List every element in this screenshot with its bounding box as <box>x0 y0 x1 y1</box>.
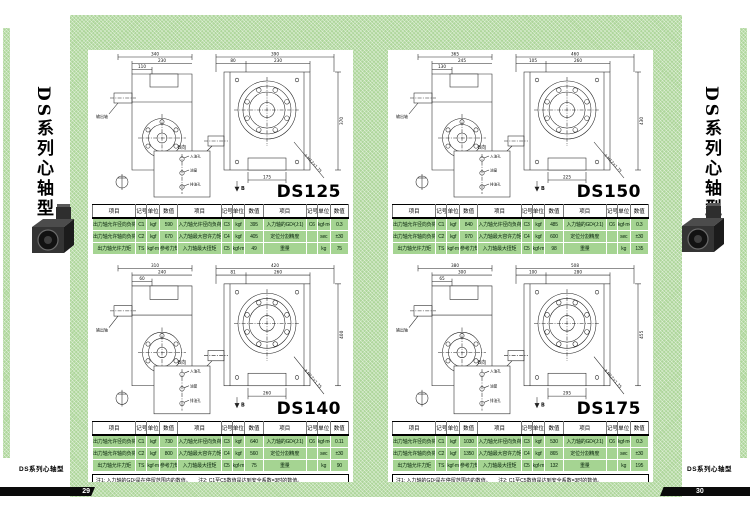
spec-cell: kgf·m <box>232 243 245 255</box>
spec-row: 出力轴允许径向负荷C1kgf1030入力轴允许径向负荷C3kgf530入力轴的G… <box>393 435 649 448</box>
col-header: 单位 <box>617 205 630 219</box>
col-header: 项目 <box>393 205 436 219</box>
col-header: 记号 <box>306 422 317 436</box>
col-header: 单位 <box>532 422 545 436</box>
spec-row: 出力轴允许轴向负荷C2kgf670入力轴最大容许力矩C4kgf405定位分割精度… <box>93 231 349 243</box>
spec-cell: kg <box>617 243 630 255</box>
spec-cell: 90 <box>330 460 348 472</box>
model-title: DS150 <box>577 182 641 202</box>
spec-cell: C6 <box>606 218 617 231</box>
table-header-row: 项目记号单位数值项目记号单位数值项目记号单位数值 <box>93 205 349 219</box>
spec-cell <box>306 448 317 460</box>
drawing-quadrant: 365 245 130 输出轴 460 105 260 输入轴 430 225 … <box>388 50 653 202</box>
col-header: 数值 <box>630 422 648 436</box>
col-header: 数值 <box>330 422 348 436</box>
view-mark-label: B <box>541 186 545 192</box>
dim-label: 340 <box>151 52 159 57</box>
spec-cell: TS <box>436 243 447 255</box>
spec-table: 项目记号单位数值项目记号单位数值项目记号单位数值出力轴允许径向负荷C1kgf73… <box>92 421 349 472</box>
col-header: 数值 <box>245 205 263 219</box>
dim-label: 380 <box>451 263 459 269</box>
spec-cell: kgf·m <box>532 460 545 472</box>
spec-cell: 出力轴允许轴向负荷 <box>393 231 436 243</box>
spec-cell: C3 <box>521 218 532 231</box>
dim-label: 455 <box>639 330 645 339</box>
spec-cell: 600 <box>545 231 563 243</box>
thread-callout: 4-M12×1.75 <box>603 368 623 390</box>
spec-cell: ±30 <box>330 448 348 460</box>
col-header: 单位 <box>232 205 245 219</box>
spec-cell: C4 <box>221 231 232 243</box>
spec-cell: 定位分割精度 <box>563 448 606 460</box>
spec-cell: 出力轴允许径向负荷 <box>393 218 436 231</box>
spec-cell: 定位分割精度 <box>263 231 306 243</box>
spec-cell: 0.11 <box>330 435 348 448</box>
spec-cell: kgf·m <box>447 243 460 255</box>
footnote: 注1: 入力轴的GD²是在停留范围内的数值。 注2: C1至C5数值是达到安全系… <box>92 474 349 482</box>
technical-drawing: 310 240 60 输出轴 420 81 260 输入轴 400 260 4-… <box>88 261 353 419</box>
content-panel-left: 340 230 110 输出轴 390 80 230 输入轴 370 175 4… <box>88 50 353 482</box>
spec-cell: 出力轴允许径向负荷 <box>93 435 136 448</box>
col-header: 数值 <box>245 422 263 436</box>
col-header: 数值 <box>545 422 563 436</box>
col-header: 项目 <box>478 422 521 436</box>
spec-cell: kgf·m <box>447 460 460 472</box>
spec-cell: kgf <box>147 435 160 448</box>
view-mark-label: B <box>241 186 245 192</box>
spec-cell: 405 <box>245 231 263 243</box>
spec-cell: kgf <box>232 435 245 448</box>
dim-label: 225 <box>563 175 571 180</box>
dim-label: 105 <box>529 58 537 63</box>
product-photo-right <box>678 202 728 256</box>
dim-label: 370 <box>339 117 344 125</box>
page-number-right: 30 <box>696 488 704 495</box>
dim-label: 110 <box>138 64 146 69</box>
spec-cell: C3 <box>221 435 232 448</box>
spec-cell: C4 <box>221 448 232 460</box>
spec-cell: 参考力矩表 <box>159 460 177 472</box>
col-header: 记号 <box>436 422 447 436</box>
drawing-quadrant: 310 240 60 输出轴 420 81 260 输入轴 400 260 4-… <box>88 261 353 419</box>
col-header: 项目 <box>93 205 136 219</box>
spec-cell: kgf·m <box>147 243 160 255</box>
shaft-label: 输出轴 <box>396 327 408 333</box>
spec-cell: C2 <box>436 231 447 243</box>
col-header: 项目 <box>178 422 221 436</box>
oil-drain-label: 排油孔 <box>190 398 201 403</box>
thread-callout: 4-M12×1.75 <box>303 368 323 390</box>
spec-cell: 132 <box>545 460 563 472</box>
technical-drawing: 380 300 65 输出轴 508 100 280 输入轴 455 295 4… <box>388 261 653 419</box>
spec-row: 出力轴允许力矩TSkgf·m参考力矩表入力轴最大扭矩C5kgf·m132重量kg… <box>393 460 649 472</box>
drawing-quadrant: 340 230 110 输出轴 390 80 230 输入轴 370 175 4… <box>88 50 353 202</box>
spec-cell: 出力轴允许力矩 <box>393 460 436 472</box>
shaft-label: 输出轴 <box>396 113 408 119</box>
spec-cell: kgf <box>232 448 245 460</box>
col-header: 数值 <box>459 205 477 219</box>
spec-cell <box>306 231 317 243</box>
col-header: 数值 <box>459 422 477 436</box>
page-number-bar-left: 29 <box>0 487 95 496</box>
oil-drain-label: 排油孔 <box>190 182 201 187</box>
spec-cell: kgf·m² <box>617 218 630 231</box>
spec-cell: kgf <box>532 218 545 231</box>
model-title: DS140 <box>277 399 341 419</box>
col-header: 项目 <box>263 422 306 436</box>
col-header: 数值 <box>630 205 648 219</box>
spec-cell: C1 <box>136 218 147 231</box>
spec-cell: C6 <box>306 218 317 231</box>
dim-label: 400 <box>339 330 345 339</box>
col-header: 记号 <box>221 205 232 219</box>
thread-callout: 4-M12×1.75 <box>303 153 323 174</box>
spec-cell: 865 <box>545 448 563 460</box>
col-header: 单位 <box>447 422 460 436</box>
dim-label: 420 <box>271 263 279 269</box>
spec-cell: kg <box>317 460 330 472</box>
spec-cell: C2 <box>436 448 447 460</box>
spec-cell: kgf·m <box>532 243 545 255</box>
spec-cell: kg <box>317 243 330 255</box>
oil-drain-label: 排油孔 <box>490 398 501 403</box>
col-header: 单位 <box>447 205 460 219</box>
col-header: 单位 <box>317 422 330 436</box>
cad-drawing: 340 230 110 输出轴 390 80 230 输入轴 370 175 4… <box>88 50 353 202</box>
spec-cell: 参考力矩表 <box>459 243 477 255</box>
spec-cell <box>606 460 617 472</box>
oil-drain-label: 排油孔 <box>490 182 501 187</box>
dim-label: 60 <box>139 276 145 282</box>
oil-hole-label: 入油孔 <box>490 154 501 159</box>
table-header-row: 项目记号单位数值项目记号单位数值项目记号单位数值 <box>393 422 649 436</box>
dim-label: 390 <box>271 52 279 57</box>
spec-cell: kgf <box>147 231 160 243</box>
col-header: 项目 <box>178 205 221 219</box>
spec-cell: 1350 <box>459 448 477 460</box>
spec-cell: C6 <box>606 435 617 448</box>
model-title: DS175 <box>577 399 641 419</box>
col-header: 数值 <box>159 422 177 436</box>
spec-cell: C4 <box>521 448 532 460</box>
spec-cell: 出力轴允许轴向负荷 <box>93 231 136 243</box>
spec-cell: 重量 <box>563 460 606 472</box>
dim-label: 430 <box>639 117 644 125</box>
spec-cell: 出力轴允许轴向负荷 <box>393 448 436 460</box>
spec-cell: 入力轴最大容许力矩 <box>178 448 221 460</box>
spec-cell: 入力轴的GD²(J:1) <box>563 218 606 231</box>
catalog-spread: DS系列心轴型 DS系列心轴型 29 DS系列心轴型 DS系列心轴型 <box>0 0 750 509</box>
spec-cell: 出力轴允许轴向负荷 <box>93 448 136 460</box>
col-header: 项目 <box>263 205 306 219</box>
oil-hole-label: 入油孔 <box>190 154 201 159</box>
oil-hole-label: 入油孔 <box>190 369 201 374</box>
spec-cell: TS <box>436 460 447 472</box>
spec-cell: C6 <box>306 435 317 448</box>
spec-cell: 定位分割精度 <box>263 448 306 460</box>
spec-cell: 0.3 <box>630 218 648 231</box>
spec-cell: kgf <box>532 435 545 448</box>
right-edge-strip <box>740 28 747 458</box>
col-header: 记号 <box>221 422 232 436</box>
col-header: 单位 <box>532 205 545 219</box>
spec-cell: C2 <box>136 448 147 460</box>
spec-table: 项目记号单位数值项目记号单位数值项目记号单位数值出力轴允许径向负荷C1kgf84… <box>392 204 649 255</box>
spec-cell: C5 <box>521 243 532 255</box>
series-title-left: DS系列心轴型 <box>31 86 56 219</box>
spec-cell: 入力轴最大容许力矩 <box>478 231 521 243</box>
dim-label: 81 <box>230 270 236 276</box>
spec-cell: kgf <box>532 231 545 243</box>
spec-cell: 入力轴最大容许力矩 <box>478 448 521 460</box>
model-title: DS125 <box>277 182 341 202</box>
b-view-label: B向 <box>478 144 486 151</box>
technical-drawing: 365 245 130 输出轴 460 105 260 输入轴 430 225 … <box>388 50 653 202</box>
spec-cell: 670 <box>159 231 177 243</box>
col-header: 数值 <box>159 205 177 219</box>
series-title-right: DS系列心轴型 <box>699 86 724 219</box>
spec-cell: 重量 <box>263 460 306 472</box>
dim-label: 460 <box>571 52 579 57</box>
dim-label: 260 <box>263 391 271 397</box>
spec-cell: kgf <box>532 448 545 460</box>
dim-label: 310 <box>151 263 159 269</box>
spec-cell: 485 <box>545 218 563 231</box>
spec-cell: TS <box>136 460 147 472</box>
spec-cell: 重量 <box>563 243 606 255</box>
spec-cell: kgf <box>232 218 245 231</box>
spec-cell: kgf <box>447 218 460 231</box>
spec-cell: kgf <box>447 435 460 448</box>
spec-cell: kgf·m <box>232 460 245 472</box>
page-number-left: 29 <box>82 488 90 495</box>
spec-cell: 195 <box>630 460 648 472</box>
spec-cell: 入力轴最大扭矩 <box>478 460 521 472</box>
footer-series-label-left: DS系列心轴型 <box>19 463 64 473</box>
spec-cell: kgf·m² <box>617 435 630 448</box>
shaft-label: 输出轴 <box>96 327 108 333</box>
dim-label: 260 <box>574 58 582 63</box>
dim-label: 245 <box>458 58 466 63</box>
spec-cell: 入力轴最大扭矩 <box>478 243 521 255</box>
dim-label: 230 <box>158 58 166 63</box>
oil-hole-label: 入油孔 <box>490 369 501 374</box>
product-photo-left <box>28 203 78 257</box>
spec-cell: kgf <box>147 448 160 460</box>
spec-cell: 395 <box>245 218 263 231</box>
col-header: 记号 <box>136 205 147 219</box>
technical-drawing: 340 230 110 输出轴 390 80 230 输入轴 370 175 4… <box>88 50 353 202</box>
dim-label: 295 <box>563 391 571 397</box>
spec-cell: 800 <box>159 448 177 460</box>
spec-cell <box>606 448 617 460</box>
col-header: 单位 <box>617 422 630 436</box>
col-header: 项目 <box>393 422 436 436</box>
spec-cell: 入力轴最大容许力矩 <box>178 231 221 243</box>
spec-row: 出力轴允许轴向负荷C2kgf1350入力轴最大容许力矩C4kgf865定位分割精… <box>393 448 649 460</box>
spec-cell: C1 <box>136 435 147 448</box>
col-header: 项目 <box>563 205 606 219</box>
spec-cell: 入力轴允许径向负荷 <box>178 435 221 448</box>
page-number-bar-right: 30 <box>660 487 750 496</box>
spec-cell: TS <box>136 243 147 255</box>
spec-cell: 98 <box>545 243 563 255</box>
spec-cell: C4 <box>521 231 532 243</box>
spec-cell: 出力轴允许径向负荷 <box>93 218 136 231</box>
product-photo-illustration <box>28 203 78 257</box>
col-header: 单位 <box>147 422 160 436</box>
spec-cell: 入力轴最大扭矩 <box>178 243 221 255</box>
spec-cell: C5 <box>221 460 232 472</box>
spec-cell: 530 <box>545 435 563 448</box>
oil-window-label: 油窗 <box>490 168 498 173</box>
oil-window-label: 油窗 <box>490 383 498 388</box>
col-header: 记号 <box>136 422 147 436</box>
spec-cell: kgf <box>147 218 160 231</box>
dim-label: 65 <box>439 276 445 282</box>
col-header: 记号 <box>306 205 317 219</box>
spec-cell: 560 <box>245 448 263 460</box>
spec-cell: sec <box>317 231 330 243</box>
spec-cell: kgf·m² <box>317 435 330 448</box>
spec-row: 出力轴允许力矩TSkgf·m参考力矩表入力轴最大扭矩C5kgf·m75重量kg9… <box>93 460 349 472</box>
spec-cell: C3 <box>521 435 532 448</box>
view-mark-label: B <box>241 402 245 408</box>
spec-cell: kgf <box>232 231 245 243</box>
drawing-quadrant: 380 300 65 输出轴 508 100 280 输入轴 455 295 4… <box>388 261 653 419</box>
spec-cell: 入力轴的GD²(J:1) <box>263 435 306 448</box>
spec-cell: 75 <box>245 460 263 472</box>
oil-window-label: 油窗 <box>190 383 198 388</box>
col-header: 记号 <box>521 422 532 436</box>
col-header: 数值 <box>545 205 563 219</box>
dim-label: 300 <box>458 270 466 276</box>
spec-row: 出力轴允许径向负荷C1kgf590入力轴允许径向负荷C3kgf395入力轴的GD… <box>93 218 349 231</box>
b-view-label: B向 <box>478 359 486 366</box>
spec-cell: 49 <box>245 243 263 255</box>
col-header: 数值 <box>330 205 348 219</box>
spec-cell: 入力轴允许径向负荷 <box>478 218 521 231</box>
spec-cell: 135 <box>630 243 648 255</box>
spec-cell: sec <box>617 231 630 243</box>
cad-drawing: 310 240 60 输出轴 420 81 260 输入轴 400 260 4-… <box>88 261 353 419</box>
col-header: 记号 <box>436 205 447 219</box>
b-view-label: B向 <box>178 144 186 151</box>
dim-label: 100 <box>529 270 537 276</box>
spec-cell: C5 <box>521 460 532 472</box>
table-header-row: 项目记号单位数值项目记号单位数值项目记号单位数值 <box>93 422 349 436</box>
col-header: 记号 <box>606 205 617 219</box>
spec-cell: 参考力矩表 <box>159 243 177 255</box>
spec-cell: 入力轴最大扭矩 <box>178 460 221 472</box>
dim-label: 80 <box>230 58 236 63</box>
spec-cell: 出力轴允许力矩 <box>93 460 136 472</box>
spec-table: 项目记号单位数值项目记号单位数值项目记号单位数值出力轴允许径向负荷C1kgf10… <box>392 421 649 472</box>
spec-cell: 640 <box>245 435 263 448</box>
view-mark-label: B <box>541 402 545 408</box>
spec-cell: 970 <box>459 231 477 243</box>
dim-label: 280 <box>574 270 582 276</box>
left-edge-strip <box>3 28 10 458</box>
thread-callout: 4-M12×1.75 <box>603 153 623 174</box>
cad-drawing: 380 300 65 输出轴 508 100 280 输入轴 455 295 4… <box>388 261 653 419</box>
spec-cell: C5 <box>221 243 232 255</box>
product-photo-illustration <box>678 202 728 256</box>
dim-label: 240 <box>158 270 166 276</box>
col-header: 单位 <box>317 205 330 219</box>
spec-cell: 重量 <box>263 243 306 255</box>
spec-cell: 出力轴允许径向负荷 <box>393 435 436 448</box>
footer-series-label-right: DS系列心轴型 <box>687 463 732 473</box>
spec-cell: C1 <box>436 435 447 448</box>
dim-label: 365 <box>451 52 459 57</box>
spec-cell: C2 <box>136 231 147 243</box>
spec-cell: ±30 <box>630 448 648 460</box>
b-view-label: B向 <box>178 359 186 366</box>
spec-cell: 1030 <box>459 435 477 448</box>
dim-label: 260 <box>274 270 282 276</box>
col-header: 项目 <box>563 422 606 436</box>
col-header: 单位 <box>232 422 245 436</box>
spec-cell: 590 <box>159 218 177 231</box>
spec-cell: 840 <box>459 218 477 231</box>
spec-cell: kgf <box>447 231 460 243</box>
spec-cell: 入力轴允许径向负荷 <box>478 435 521 448</box>
spec-cell: kgf·m <box>147 460 160 472</box>
spec-cell: 出力轴允许力矩 <box>93 243 136 255</box>
spec-table: 项目记号单位数值项目记号单位数值项目记号单位数值出力轴允许径向负荷C1kgf59… <box>92 204 349 255</box>
spec-cell <box>306 460 317 472</box>
spec-cell <box>306 243 317 255</box>
spec-cell: 0.3 <box>630 435 648 448</box>
spec-cell: kgf·m² <box>317 218 330 231</box>
shaft-label: 输出轴 <box>96 113 108 119</box>
spec-cell: kgf <box>447 448 460 460</box>
spec-cell: 75 <box>330 243 348 255</box>
spec-cell: 出力轴允许力矩 <box>393 243 436 255</box>
spec-cell: ±30 <box>330 231 348 243</box>
spec-cell: sec <box>617 448 630 460</box>
spec-cell: 入力轴允许径向负荷 <box>178 218 221 231</box>
dim-label: 130 <box>438 64 446 69</box>
spec-row: 出力轴允许轴向负荷C2kgf800入力轴最大容许力矩C4kgf560定位分割精度… <box>93 448 349 460</box>
col-header: 记号 <box>521 205 532 219</box>
spec-row: 出力轴允许力矩TSkgf·m参考力矩表入力轴最大扭矩C5kgf·m49重量kg7… <box>93 243 349 255</box>
table-header-row: 项目记号单位数值项目记号单位数值项目记号单位数值 <box>393 205 649 219</box>
spec-row: 出力轴允许轴向负荷C2kgf970入力轴最大容许力矩C4kgf600定位分割精度… <box>393 231 649 243</box>
spec-cell: 入力轴的GD²(J:1) <box>263 218 306 231</box>
spec-cell: 参考力矩表 <box>459 460 477 472</box>
spec-row: 出力轴允许力矩TSkgf·m参考力矩表入力轴最大扭矩C5kgf·m98重量kg1… <box>393 243 649 255</box>
spec-row: 出力轴允许径向负荷C1kgf840入力轴允许径向负荷C3kgf485入力轴的GD… <box>393 218 649 231</box>
spec-cell <box>606 231 617 243</box>
spec-row: 出力轴允许径向负荷C1kgf730入力轴允许径向负荷C3kgf640入力轴的GD… <box>93 435 349 448</box>
spec-cell: 入力轴的GD²(J:1) <box>563 435 606 448</box>
col-header: 记号 <box>606 422 617 436</box>
spec-cell: 0.3 <box>330 218 348 231</box>
spec-cell: 定位分割精度 <box>563 231 606 243</box>
spec-cell: C3 <box>221 218 232 231</box>
oil-window-label: 油窗 <box>190 168 198 173</box>
dim-label: 508 <box>571 263 579 269</box>
spec-cell: 730 <box>159 435 177 448</box>
spec-cell: ±30 <box>630 231 648 243</box>
col-header: 项目 <box>93 422 136 436</box>
footnote: 注1: 入力轴的GD²是在停留范围内的数值。 注2: C1至C5数值是达到安全系… <box>392 474 649 482</box>
spec-cell <box>606 243 617 255</box>
col-header: 项目 <box>478 205 521 219</box>
dim-label: 230 <box>274 58 282 63</box>
